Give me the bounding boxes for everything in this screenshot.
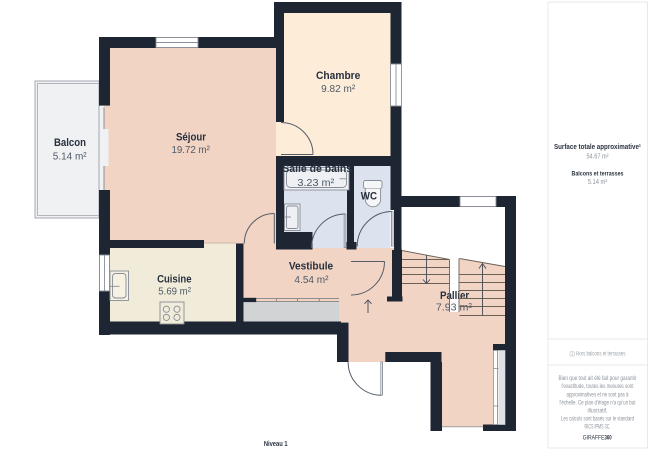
- svg-text:l'exactitude, toutes les mesur: l'exactitude, toutes les mesures sont: [562, 383, 634, 390]
- svg-text:Niveau 1: Niveau 1: [264, 439, 288, 448]
- svg-text:Chambre: Chambre: [316, 70, 360, 82]
- svg-text:(1) Hors balcons et terrasses: (1) Hors balcons et terrasses: [570, 352, 626, 358]
- svg-text:5.69 m²: 5.69 m²: [158, 286, 191, 297]
- svg-text:Vestibule: Vestibule: [289, 261, 333, 273]
- svg-text:WC: WC: [361, 190, 377, 202]
- svg-text:Cuisine: Cuisine: [157, 273, 191, 285]
- svg-text:Balcons et terrasses: Balcons et terrasses: [572, 170, 624, 177]
- svg-text:3.23 m²: 3.23 m²: [297, 178, 335, 189]
- svg-text:approximatives et ne sont pas: approximatives et ne sont pas à: [567, 391, 629, 398]
- svg-text:360: 360: [605, 435, 613, 442]
- svg-text:19.72 m²: 19.72 m²: [171, 145, 210, 156]
- svg-text:Salle de bains: Salle de bains: [282, 163, 352, 175]
- svg-text:Pallier: Pallier: [440, 290, 470, 302]
- svg-text:9.82 m²: 9.82 m²: [321, 84, 356, 95]
- svg-text:4.54 m²: 4.54 m²: [294, 275, 329, 286]
- svg-text:5.14 m²: 5.14 m²: [588, 179, 608, 186]
- svg-text:54.67 m²: 54.67 m²: [587, 154, 610, 161]
- svg-text:illustratif.: illustratif.: [588, 408, 608, 415]
- svg-text:Les calculs sont basés sur le: Les calculs sont basés sur le standard: [561, 415, 634, 422]
- svg-text:7.93 m²: 7.93 m²: [436, 303, 473, 314]
- svg-text:5.14 m²: 5.14 m²: [53, 152, 87, 163]
- svg-text:Balcon: Balcon: [54, 137, 86, 149]
- svg-text:Bien que tout ait été fait pou: Bien que tout ait été fait pour garantir: [559, 375, 637, 382]
- svg-text:l'échelle. Ce plan d'étage n'a: l'échelle. Ce plan d'étage n'a qu'un but: [560, 400, 636, 407]
- svg-text:Séjour: Séjour: [176, 132, 207, 144]
- svg-text:GIRAFFE: GIRAFFE: [583, 435, 605, 442]
- svg-text:RICS IPMS 3C.: RICS IPMS 3C.: [585, 424, 611, 431]
- svg-text:Surface totale approximative¹: Surface totale approximative¹: [554, 142, 641, 151]
